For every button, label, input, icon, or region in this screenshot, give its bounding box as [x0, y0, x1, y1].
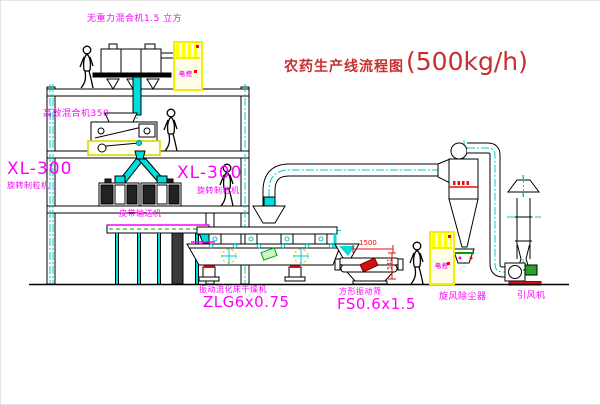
indicator-dot — [448, 235, 451, 238]
diagram-title: 农药生产线流程图 (500kg/h) — [284, 47, 528, 76]
label-granulator-right-name: 旋转制粒机 — [197, 187, 240, 195]
flow-diagram-canvas: 电控 电控 农药生产线流程图 (500kg/h) 无重力混合机1.5 立方 高效… — [0, 0, 600, 405]
dimension-541: 541 — [388, 258, 394, 269]
person-figure-mid-floor — [164, 109, 177, 151]
gravity-mixer-drawing — [93, 44, 174, 115]
cabinet-label: 电控 — [179, 69, 193, 78]
title-capacity: (500kg/h) — [406, 47, 528, 76]
label-gravity-mixer: 无重力混合机1.5 立方 — [87, 15, 182, 24]
indicator-dot — [194, 70, 197, 73]
dryer-drawing — [187, 227, 341, 281]
label-granulator-left-name: 旋转制粒机 — [7, 182, 50, 190]
granulator-right-drawing — [141, 176, 181, 206]
label-dryer-model: ZLG6x0.75 — [203, 295, 290, 310]
stack-drawing — [508, 175, 539, 271]
person-figure-roof — [80, 46, 93, 88]
label-cyclone: 旋风除尘器 — [439, 293, 487, 302]
label-mixer350: 高效混合机350 — [43, 110, 109, 119]
indicator-dot — [196, 45, 199, 48]
granulator-left-drawing — [99, 176, 139, 206]
label-belt-conveyor: 皮带输送机 — [119, 210, 162, 218]
dimension-1500: 1500 — [359, 240, 377, 247]
person-figure-ground — [410, 242, 423, 284]
indicator-dot — [447, 262, 450, 265]
fan-drawing — [505, 263, 541, 285]
label-granulator-left-model: XL-300 — [7, 161, 72, 178]
label-granulator-right-model: XL-300 — [177, 165, 242, 182]
label-screen-model: FS0.6x1.5 — [337, 297, 416, 312]
control-cabinet-top: 电控 — [173, 41, 203, 91]
control-cabinet-ground: 电控 — [429, 231, 455, 285]
exhaust-duct-drawing — [253, 159, 450, 223]
label-fan: 引风机 — [517, 292, 546, 301]
title-text: 农药生产线流程图 — [284, 56, 404, 76]
mixer350-drawing — [88, 113, 160, 159]
